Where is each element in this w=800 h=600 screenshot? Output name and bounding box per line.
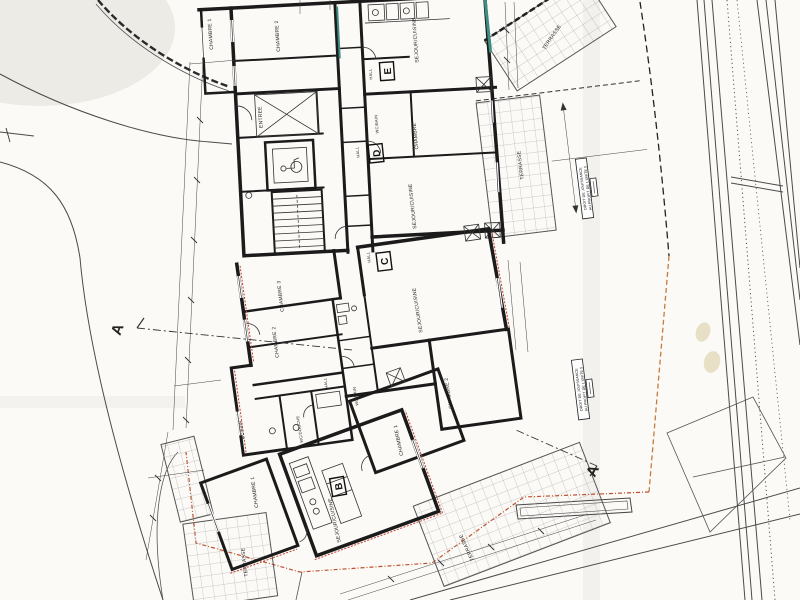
- terrace-right: [476, 80, 660, 237]
- floor-plan-drawing: A A E D C B DROIT DE JOUISSANCE AU PROFI…: [0, 0, 800, 600]
- unit-letter-b: B: [333, 482, 345, 491]
- room-label-chambre2-e: CHAMBRE 2: [274, 20, 282, 52]
- wheelchair-icon: [280, 158, 302, 174]
- terrace-side-left: [161, 436, 213, 522]
- room-label-hall-c2: HALL: [322, 377, 329, 389]
- scanned-floor-plan-page: A A E D C B DROIT DE JOUISSANCE AU PROFI…: [0, 0, 800, 600]
- room-label-wcbain-c: WC/BAIN: [352, 387, 360, 406]
- room-label-chambre1-cr: CHAMBRE 1: [393, 424, 405, 456]
- unit-letter-c: C: [380, 257, 392, 266]
- room-label-chambre2-cr: CHAMBRE 2: [444, 377, 455, 409]
- terrace-bottom-left: [183, 513, 278, 600]
- room-label-entree: ENTREE: [257, 106, 265, 129]
- room-label-sejour-c: SEJOUR/CUISINE: [411, 287, 424, 333]
- room-label-sejour-e: SEJOUR/CUISINE: [411, 17, 420, 63]
- section-marker-a-left: A: [108, 321, 128, 337]
- room-label-sejour-b: SEJOUR/CUISINE: [327, 497, 342, 543]
- room-label-chambre1-e: CHAMBRE 1: [207, 18, 215, 50]
- unit-letter-d: D: [372, 149, 384, 157]
- room-label-hall-e: HALL: [368, 68, 374, 80]
- room-label-chambre1-b: CHAMBRE 1: [250, 476, 260, 508]
- building-wing-top: [199, 0, 504, 259]
- room-label-hall-d: HALL: [354, 146, 360, 158]
- room-label-sejour-d: SEJOUR/CUISINE: [408, 183, 419, 229]
- unit-letter-e: E: [383, 67, 394, 75]
- room-label-wcbain-d: WC/BAIN: [373, 115, 379, 134]
- room-label-wcbain-b: WC/BAIN: [238, 421, 246, 440]
- room-label-wcdouche-b: WC/DOUCHE: [295, 415, 304, 443]
- room-label-hall-c: HALL: [365, 251, 371, 263]
